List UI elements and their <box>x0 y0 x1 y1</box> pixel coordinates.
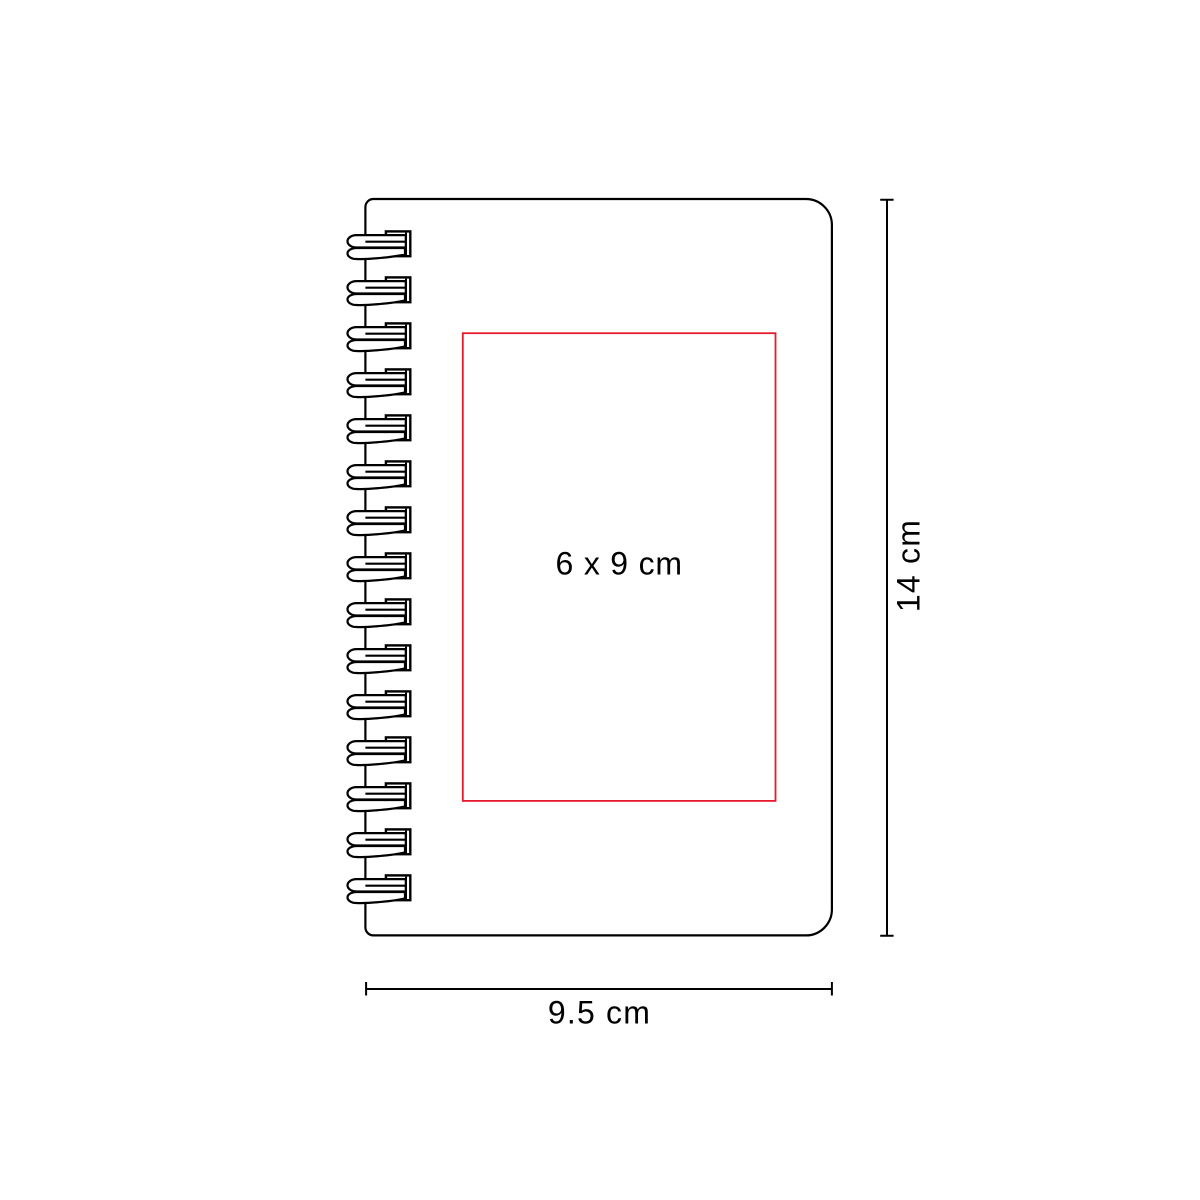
svg-text:6 x 9 cm: 6 x 9 cm <box>556 545 683 581</box>
svg-text:14 cm: 14 cm <box>890 519 926 612</box>
svg-text:9.5 cm: 9.5 cm <box>548 994 651 1030</box>
